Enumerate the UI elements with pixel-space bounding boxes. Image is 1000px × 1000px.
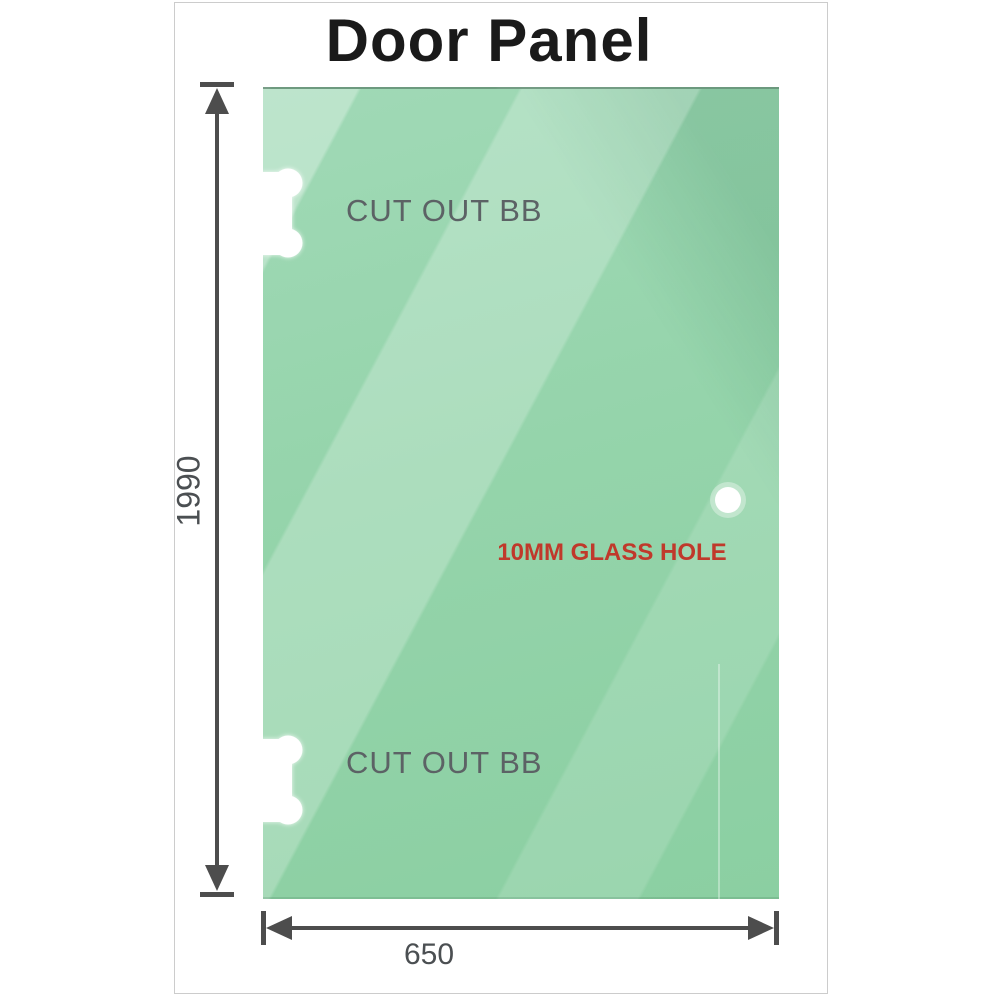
cutout-label-bottom: CUT OUT BB — [346, 745, 543, 781]
hinge-cutout-top-icon — [256, 168, 308, 260]
page-title: Door Panel — [326, 6, 653, 75]
glass-hole-label: 10MM GLASS HOLE — [497, 539, 726, 567]
door-panel-glass: CUT OUT BB CUT OUT BB 10MM GLASS HOLE — [263, 87, 779, 899]
cutout-label-top: CUT OUT BB — [346, 193, 543, 229]
height-dimension-label: 1990 — [171, 455, 208, 526]
hinge-cutout-bottom-icon — [256, 735, 308, 827]
product-diagram: Door Panel CUT OUT BB CUT OUT BB 10MM GL… — [0, 0, 1000, 1000]
glass-hole-icon — [715, 487, 741, 513]
width-dimension-label: 650 — [404, 938, 454, 972]
glass-reflection-line — [718, 664, 720, 899]
